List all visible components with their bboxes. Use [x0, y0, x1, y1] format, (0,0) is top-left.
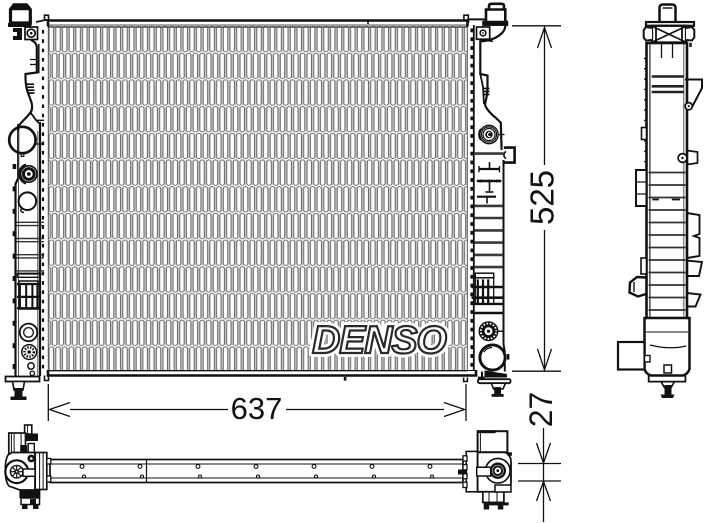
svg-text:DENSO: DENSO — [312, 319, 446, 362]
svg-text:525: 525 — [524, 170, 561, 225]
svg-text:27: 27 — [523, 392, 559, 428]
svg-text:637: 637 — [231, 391, 283, 426]
